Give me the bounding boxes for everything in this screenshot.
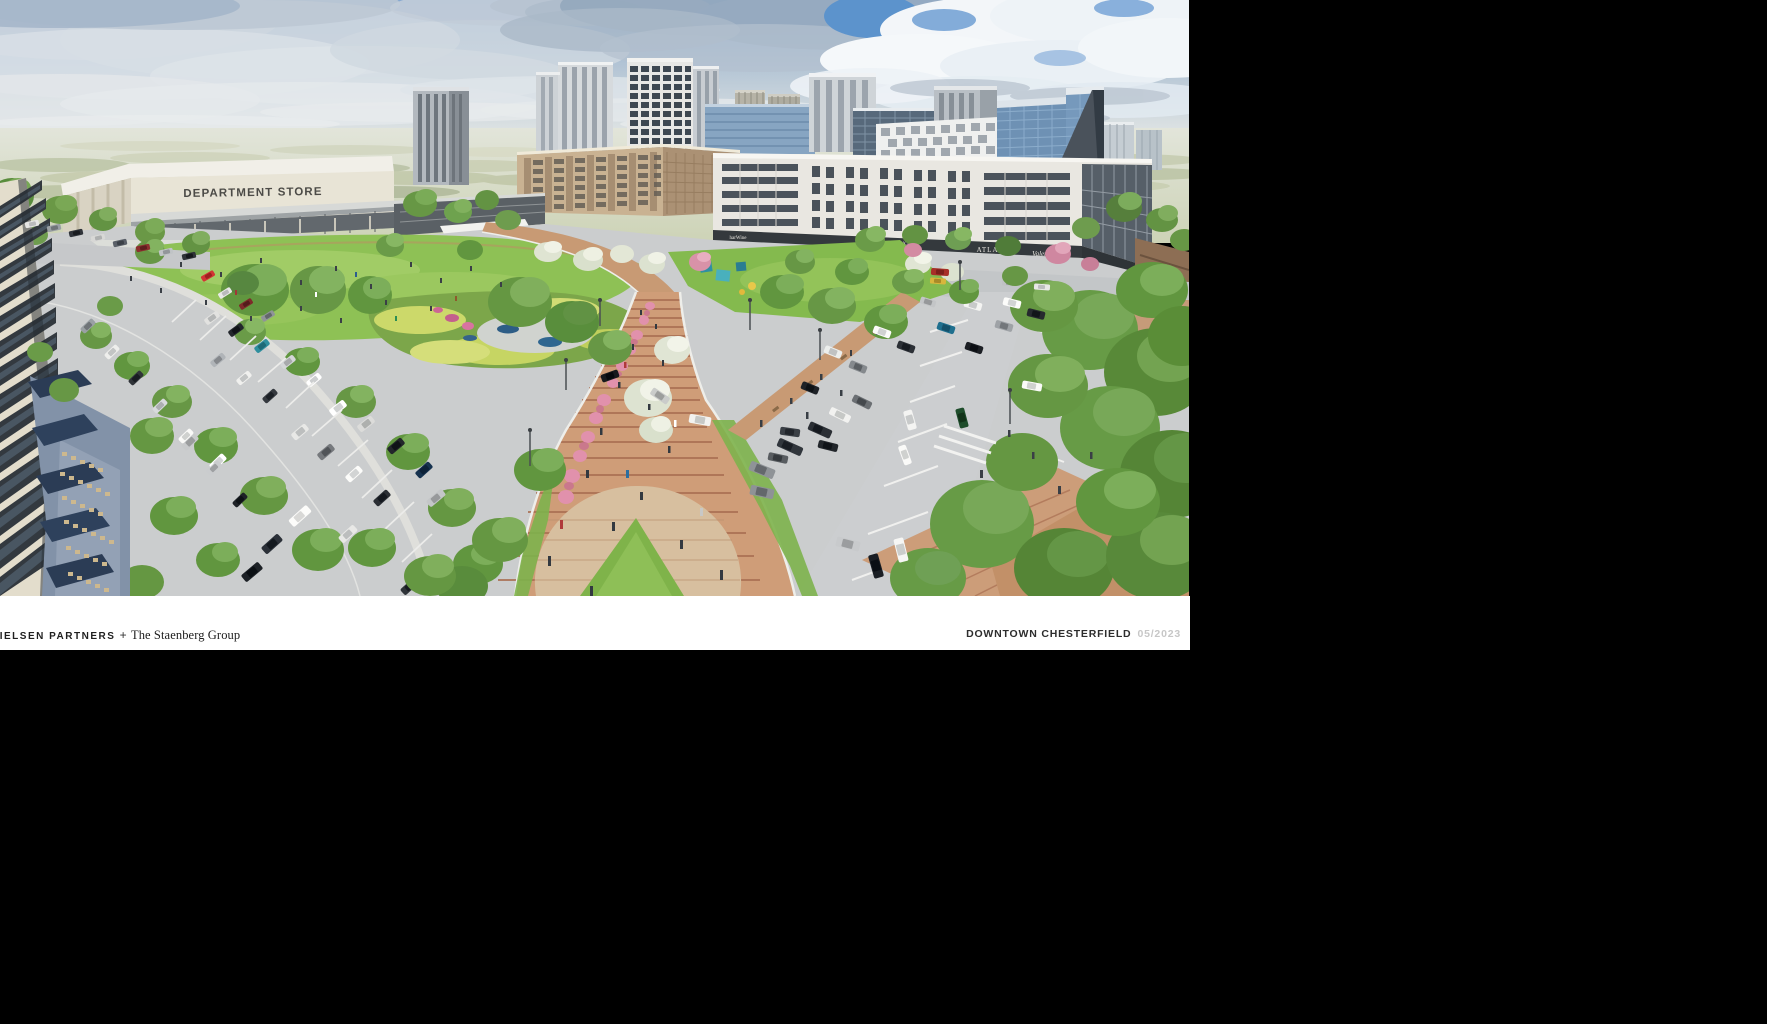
svg-text:harWine: harWine	[729, 236, 747, 241]
svg-text:DEPARTMENT STORE: DEPARTMENT STORE	[183, 186, 322, 200]
